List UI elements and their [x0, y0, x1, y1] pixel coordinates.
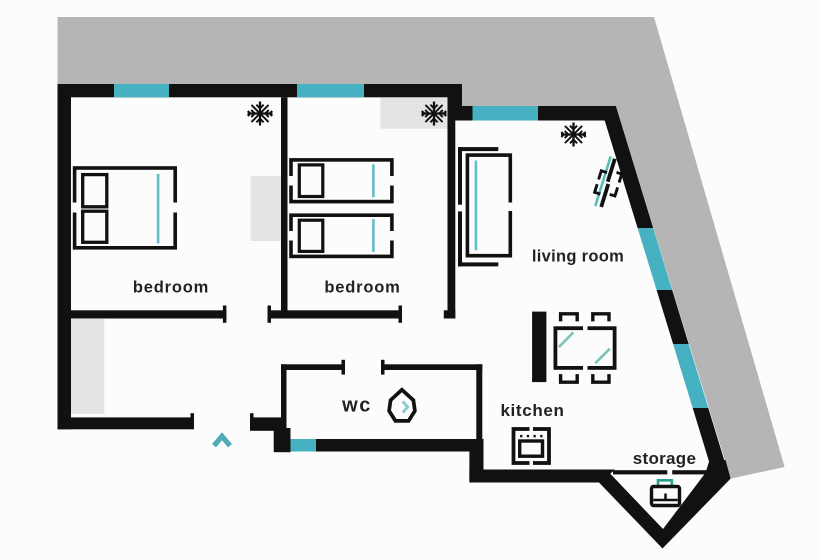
svg-text:living room: living room — [532, 248, 624, 266]
svg-text:storage: storage — [633, 449, 697, 468]
svg-text:bedroom: bedroom — [133, 279, 209, 297]
svg-text:bedroom: bedroom — [324, 279, 400, 297]
svg-text:wc: wc — [341, 395, 372, 417]
svg-text:kitchen: kitchen — [500, 401, 564, 420]
